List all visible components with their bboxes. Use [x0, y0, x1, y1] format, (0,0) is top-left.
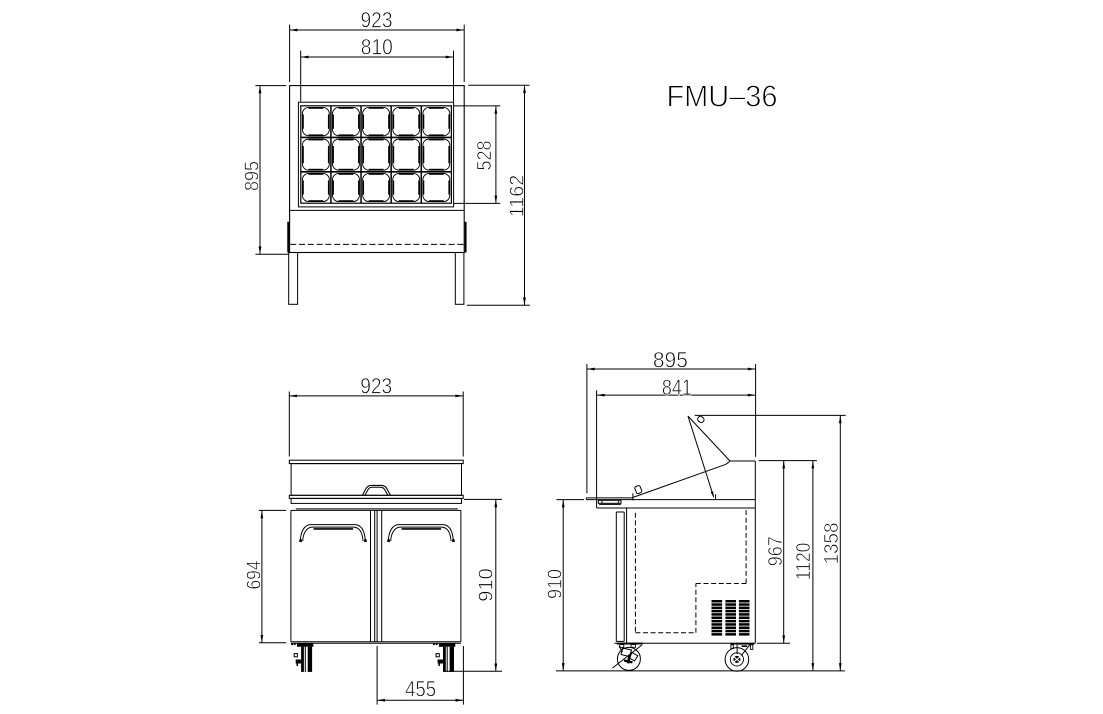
svg-text:910: 910 — [475, 568, 498, 602]
svg-text:FMU–36: FMU–36 — [667, 79, 778, 114]
svg-text:910: 910 — [543, 569, 566, 599]
svg-text:455: 455 — [405, 677, 436, 702]
svg-text:841: 841 — [662, 375, 692, 400]
svg-text:967: 967 — [764, 536, 787, 566]
svg-text:528: 528 — [473, 141, 496, 171]
svg-text:923: 923 — [360, 374, 392, 399]
svg-text:810: 810 — [361, 34, 393, 59]
svg-text:895: 895 — [653, 347, 688, 372]
svg-text:1162: 1162 — [505, 175, 528, 218]
svg-text:923: 923 — [361, 7, 393, 32]
svg-text:694: 694 — [242, 561, 265, 590]
svg-text:1358: 1358 — [820, 523, 843, 565]
svg-text:1120: 1120 — [792, 543, 815, 581]
svg-text:895: 895 — [241, 161, 264, 191]
